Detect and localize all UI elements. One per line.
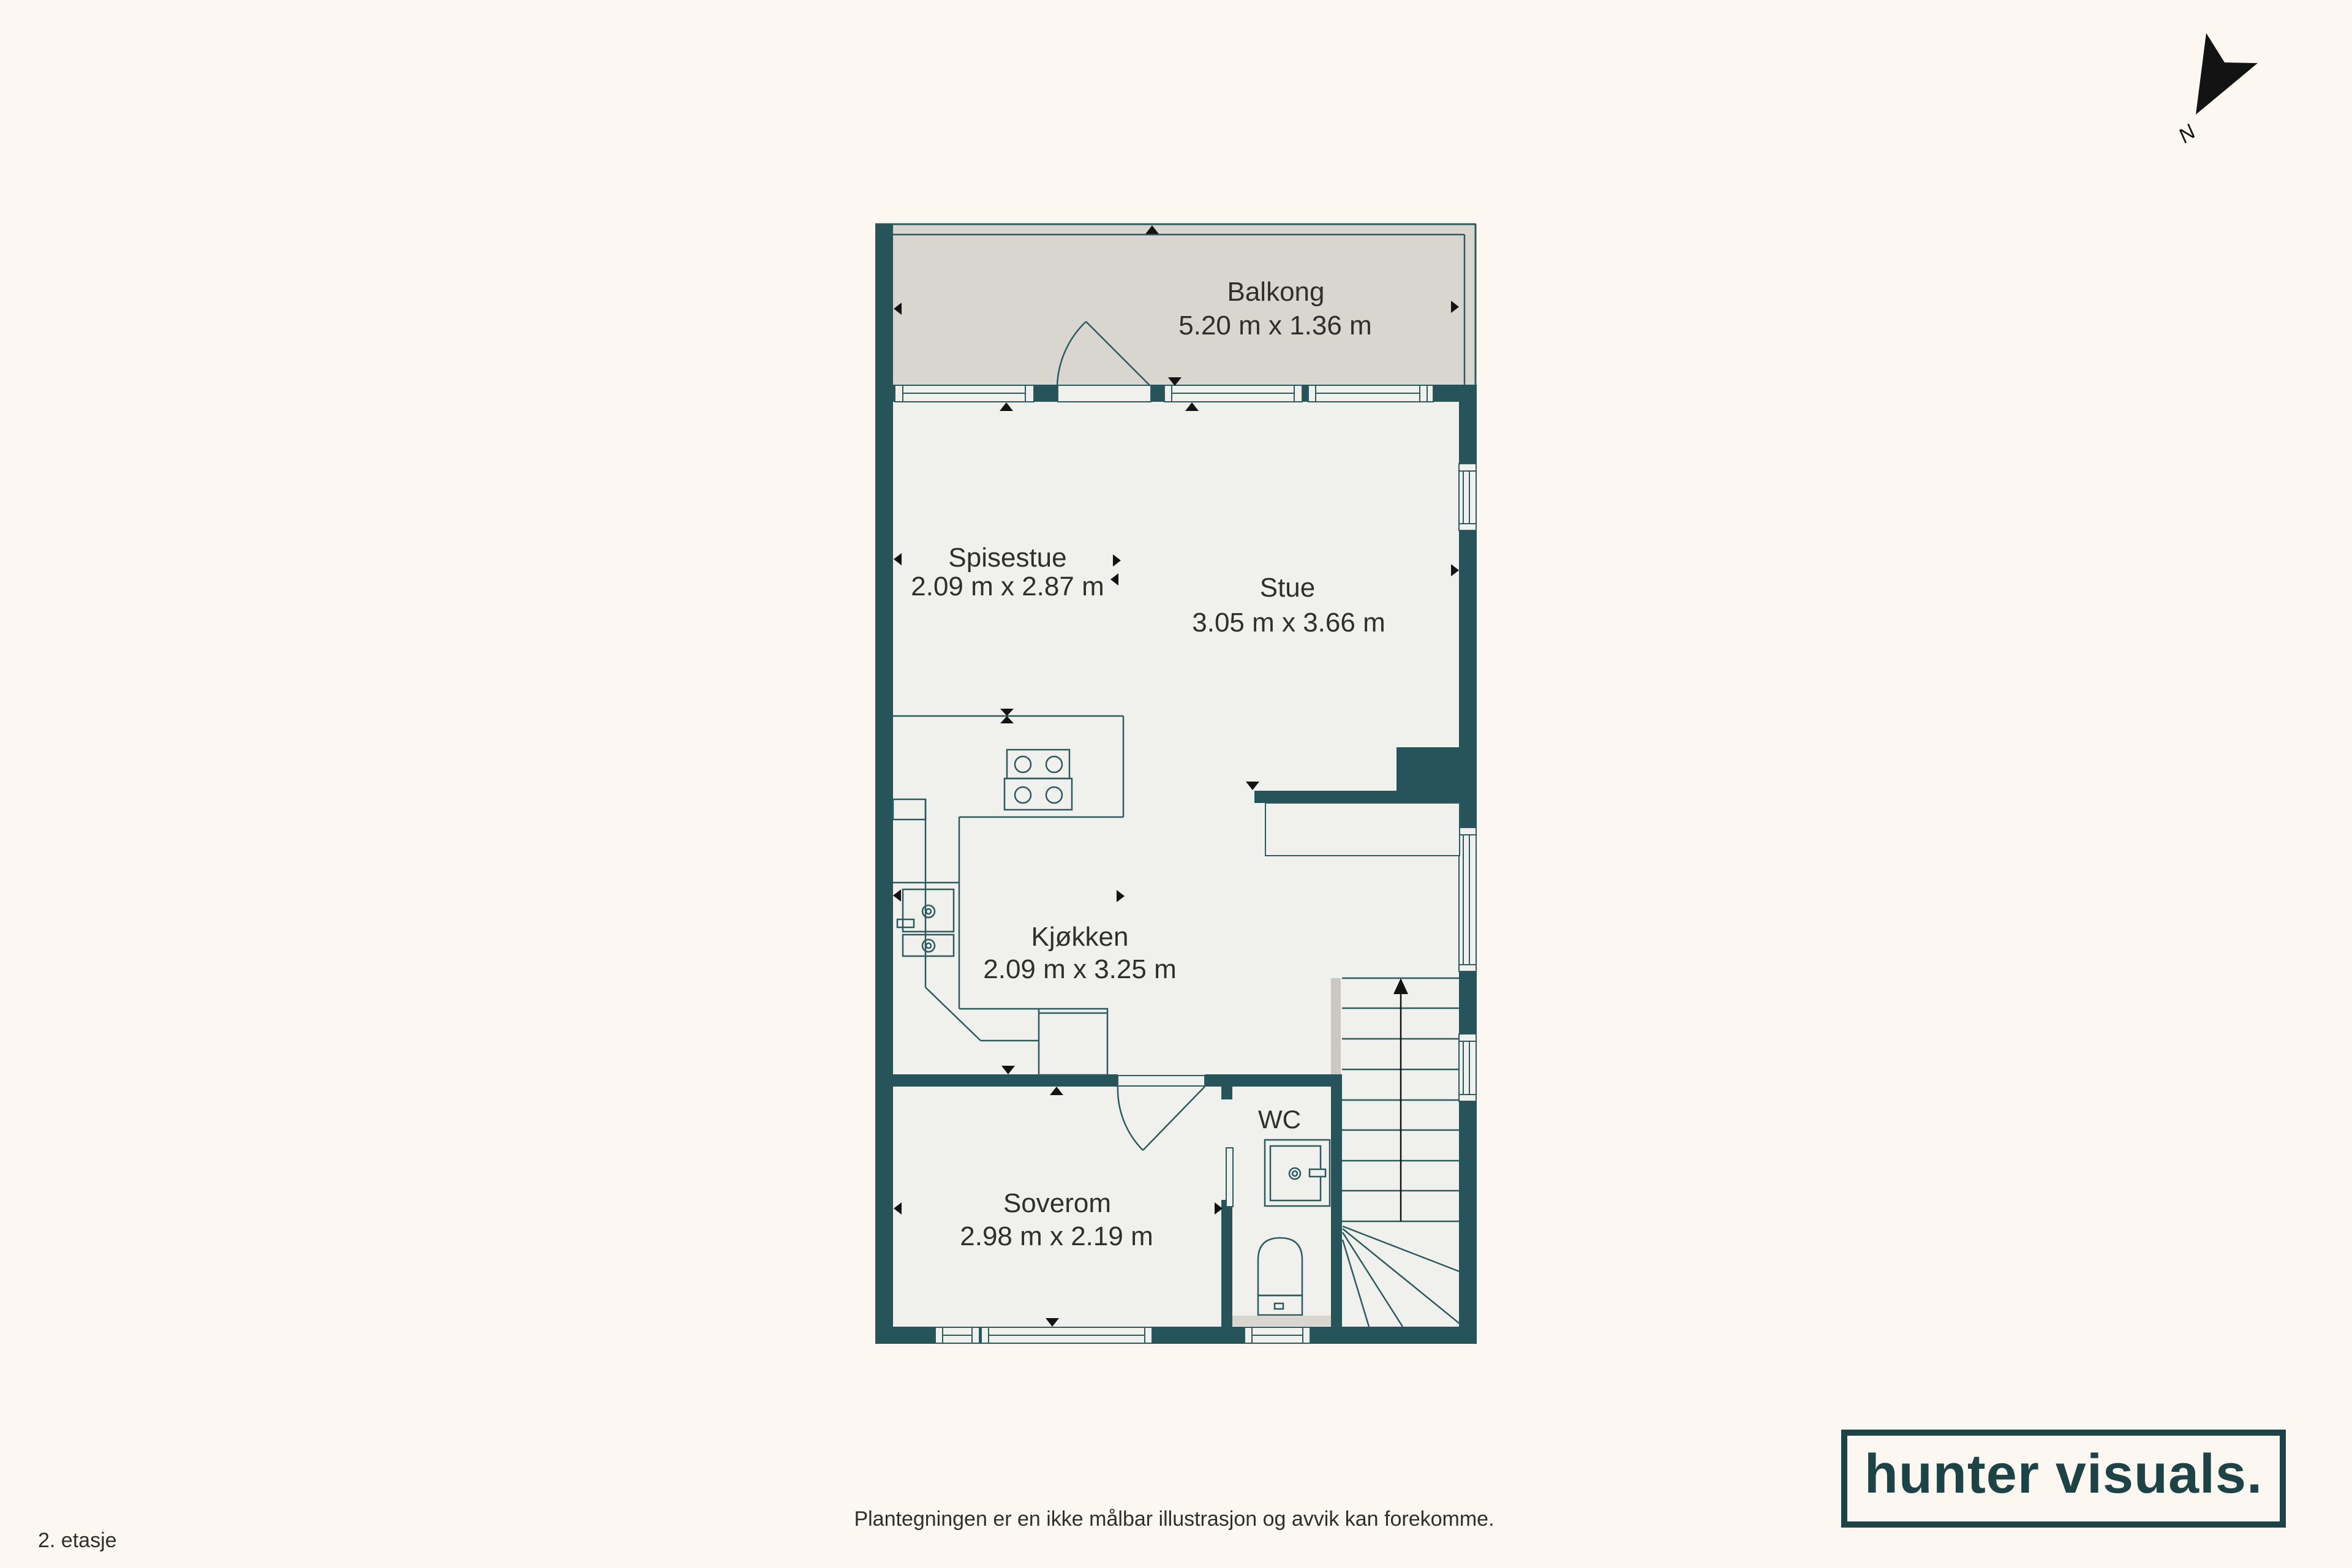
svg-text:Balkong: Balkong — [1227, 277, 1324, 307]
svg-text:Soverom: Soverom — [1003, 1188, 1111, 1218]
svg-text:2. etasje: 2. etasje — [38, 1529, 117, 1552]
svg-text:2.09 m x 3.25 m: 2.09 m x 3.25 m — [983, 954, 1176, 984]
svg-text:Stue: Stue — [1260, 573, 1316, 603]
svg-text:5.20 m x 1.36 m: 5.20 m x 1.36 m — [1178, 311, 1371, 341]
svg-text:Kjøkken: Kjøkken — [1031, 922, 1129, 952]
svg-text:WC: WC — [1258, 1105, 1301, 1134]
svg-text:Plantegningen er en ikke målba: Plantegningen er en ikke målbar illustra… — [854, 1507, 1494, 1531]
svg-text:2.09 m x 2.87 m: 2.09 m x 2.87 m — [911, 571, 1104, 601]
svg-text:3.05 m x 3.66 m: 3.05 m x 3.66 m — [1192, 608, 1385, 638]
svg-text:Spisestue: Spisestue — [948, 543, 1066, 573]
svg-text:2.98 m x 2.19 m: 2.98 m x 2.19 m — [960, 1221, 1153, 1251]
svg-text:hunter visuals.: hunter visuals. — [1864, 1444, 2263, 1505]
